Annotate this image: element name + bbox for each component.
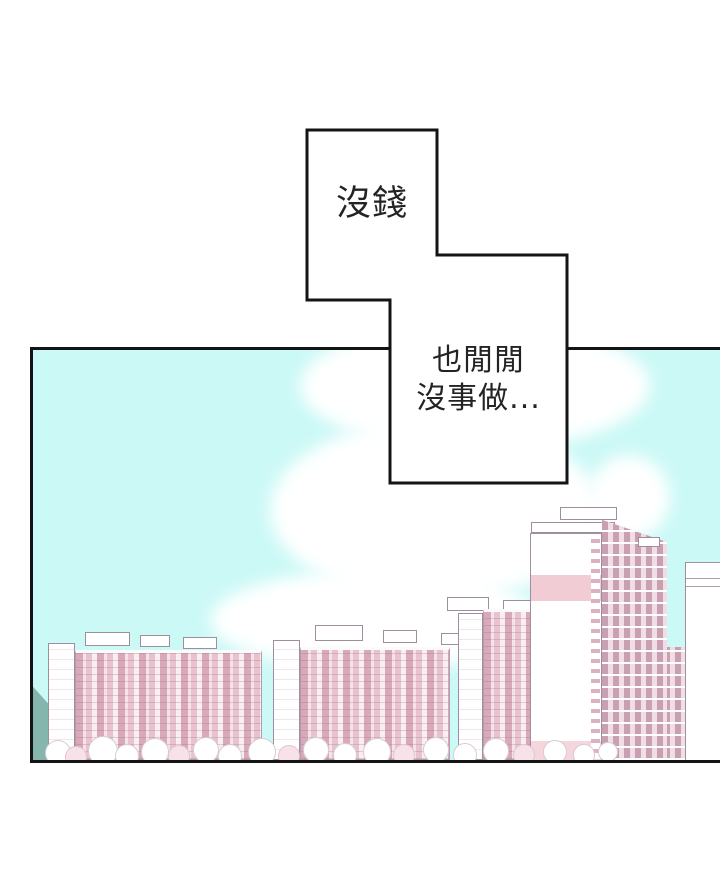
bush [88,736,118,763]
rooftop-box [315,625,363,641]
bush [115,744,139,763]
building-c-endwall [458,613,483,760]
bush [483,738,509,763]
roof-line [686,578,720,579]
comic-panel [30,347,720,763]
rooftop-box [140,635,170,647]
roof-line [686,586,720,587]
bush [193,737,219,763]
bush [363,738,391,763]
bush [543,740,567,763]
bush [423,737,449,763]
bush [333,743,357,763]
building-b-endwall [273,640,300,760]
caption-text-2-line2: 沒事做... [390,380,567,418]
bush [65,746,87,763]
building-f [685,562,720,760]
bush [513,744,535,763]
tower-window-strip [591,536,600,759]
caption-text-2: 也閒閒 沒事做... [390,342,567,418]
rooftop-box [85,632,130,646]
rooftop-box [383,630,417,643]
bush [598,742,618,762]
bush [573,744,595,763]
bush [168,745,190,763]
bush [303,737,329,763]
tower-front-face [530,533,602,760]
rooftop-box [183,637,217,649]
rooftop-box [560,507,617,520]
bush [141,738,169,763]
rooftop-box [638,537,660,547]
bush [218,744,242,763]
bush [278,745,300,763]
bush [248,738,276,763]
bush [453,743,477,763]
building-d-tower [530,505,672,760]
caption-text-1: 沒錢 [307,184,437,224]
tower-side-face [602,515,667,760]
bush [393,744,415,763]
comic-page: 沒錢 也閒閒 沒事做... [0,0,720,893]
caption-text-2-line1: 也閒閒 [390,342,567,380]
